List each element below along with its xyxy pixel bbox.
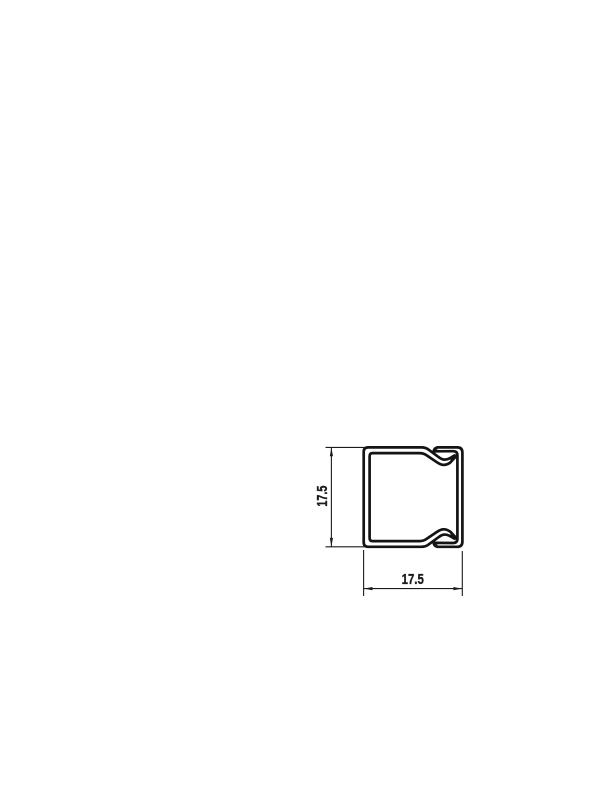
svg-text:17.5: 17.5 [315,486,331,507]
svg-text:17.5: 17.5 [402,571,425,588]
